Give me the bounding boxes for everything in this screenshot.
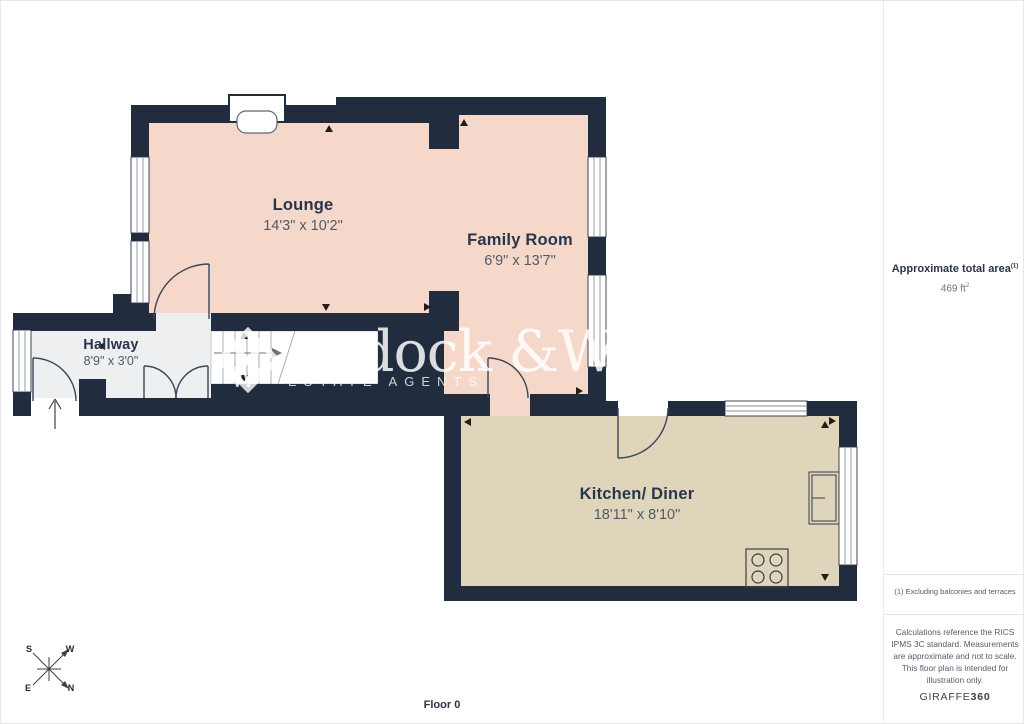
window-lounge-left-2	[131, 241, 149, 303]
compass-letter-s: S	[26, 644, 32, 654]
info-sidebar: Approximate total area(1) 469 ft2 (1) Ex…	[883, 1, 1024, 724]
room-label-lounge: Lounge 14'3" x 10'2"	[263, 196, 343, 234]
total-area-value: 469 ft2	[884, 283, 1024, 294]
floor-label: Floor 0	[1, 699, 883, 711]
compass-letter-w: W	[66, 644, 75, 654]
window-hallway-left	[13, 330, 31, 392]
room-label-kitchen-diner: Kitchen/ Diner 18'11" x 8'10"	[580, 485, 695, 523]
window-kitchen-top	[725, 401, 807, 416]
room-name: Hallway	[83, 337, 138, 353]
compass-icon: S W E N	[25, 644, 75, 693]
room-name: Kitchen/ Diner	[580, 485, 695, 504]
sidebar-divider-bottom	[884, 614, 1024, 615]
brand-suffix: 360	[971, 691, 991, 703]
disclaimer-text: Calculations reference the RICS IPMS 3C …	[891, 626, 1019, 686]
room-name: Family Room	[467, 231, 573, 250]
brand-name: GIRAFFE	[919, 691, 970, 703]
room-dimensions: 8'9" x 3'0"	[83, 354, 138, 368]
total-area-block: Approximate total area(1) 469 ft2	[884, 263, 1024, 294]
window-lounge-left-1	[131, 157, 149, 233]
room-label-hallway: Hallway 8'9" x 3'0"	[83, 337, 138, 368]
total-area-value-text: 469 ft	[941, 283, 966, 294]
window-family-right-2	[588, 275, 606, 367]
fireplace	[229, 95, 285, 133]
floorplan-canvas: S W E N W dock &Was ESTATE AGENTS	[1, 1, 883, 724]
total-area-value-sup: 2	[966, 283, 969, 289]
compass-letter-n: N	[68, 683, 75, 693]
total-area-title: Approximate total area(1)	[884, 263, 1024, 275]
room-dimensions: 6'9" x 13'7"	[467, 253, 573, 269]
window-kitchen-right	[839, 447, 857, 565]
sidebar-divider-top	[884, 574, 1024, 575]
room-name: Lounge	[263, 196, 343, 215]
entrance-arrow	[49, 399, 61, 429]
room-dimensions: 14'3" x 10'2"	[263, 218, 343, 234]
giraffe360-brand: GIRAFFE360	[884, 691, 1024, 703]
compass-letter-e: E	[25, 683, 31, 693]
window-family-right-1	[588, 157, 606, 237]
stairs	[211, 331, 378, 384]
total-area-title-footnote-marker: (1)	[1011, 263, 1018, 269]
footnote-text: (1) Excluding balconies and terraces	[887, 587, 1023, 596]
total-area-title-text: Approximate total area	[892, 263, 1011, 275]
room-label-family-room: Family Room 6'9" x 13'7"	[467, 231, 573, 269]
room-dimensions: 18'11" x 8'10"	[580, 507, 695, 523]
floorplan-page: S W E N W dock &Was ESTATE AGENTS	[0, 0, 1024, 724]
